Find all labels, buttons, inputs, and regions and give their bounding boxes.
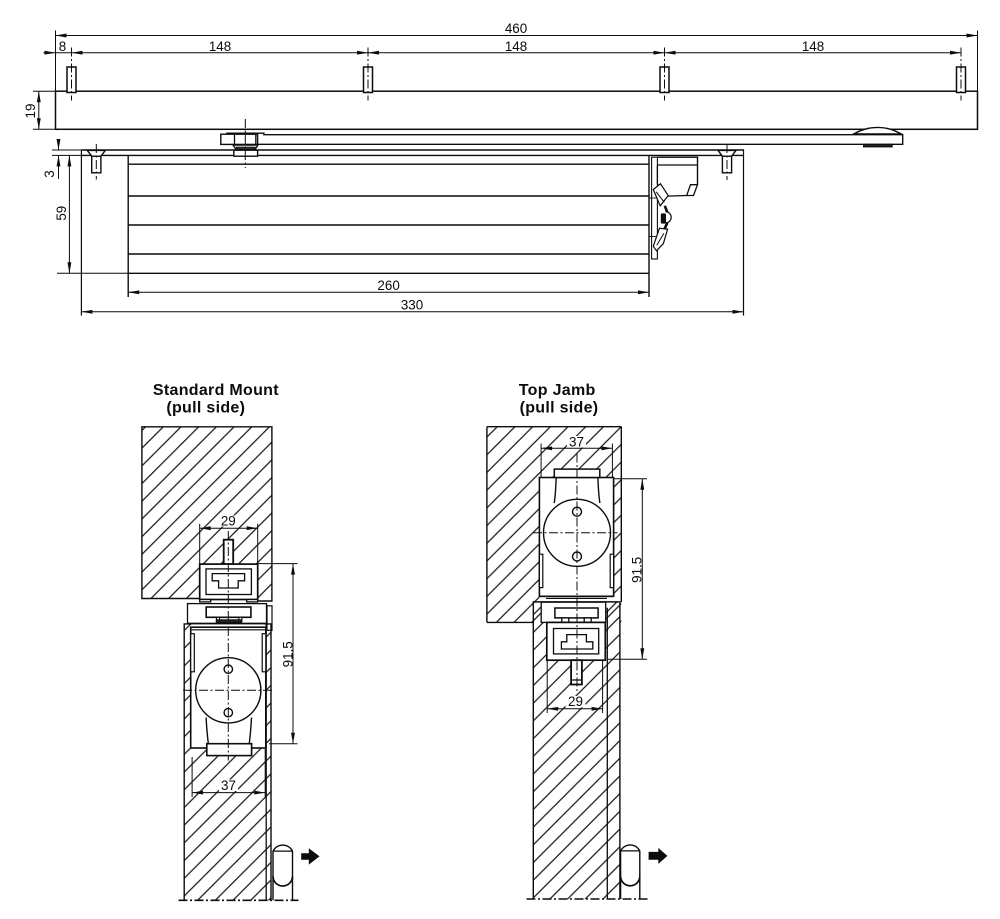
svg-text:Top Jamb: Top Jamb bbox=[519, 382, 596, 399]
svg-text:3: 3 bbox=[42, 170, 57, 177]
svg-text:148: 148 bbox=[505, 39, 527, 54]
svg-text:148: 148 bbox=[209, 39, 231, 54]
svg-text:330: 330 bbox=[401, 297, 423, 312]
svg-text:(pull side): (pull side) bbox=[166, 400, 245, 417]
svg-text:91.5: 91.5 bbox=[630, 557, 645, 583]
svg-text:Standard Mount: Standard Mount bbox=[153, 382, 279, 399]
svg-text:29: 29 bbox=[568, 694, 583, 709]
svg-text:37: 37 bbox=[221, 778, 236, 793]
svg-text:260: 260 bbox=[377, 278, 399, 293]
svg-text:148: 148 bbox=[802, 39, 824, 54]
svg-text:8: 8 bbox=[59, 39, 66, 54]
svg-text:59: 59 bbox=[54, 206, 69, 221]
svg-text:91.5: 91.5 bbox=[280, 641, 295, 667]
svg-text:460: 460 bbox=[505, 21, 527, 36]
svg-text:19: 19 bbox=[23, 104, 38, 119]
svg-text:(pull side): (pull side) bbox=[520, 400, 599, 417]
svg-text:29: 29 bbox=[221, 513, 236, 528]
svg-text:37: 37 bbox=[569, 434, 584, 449]
